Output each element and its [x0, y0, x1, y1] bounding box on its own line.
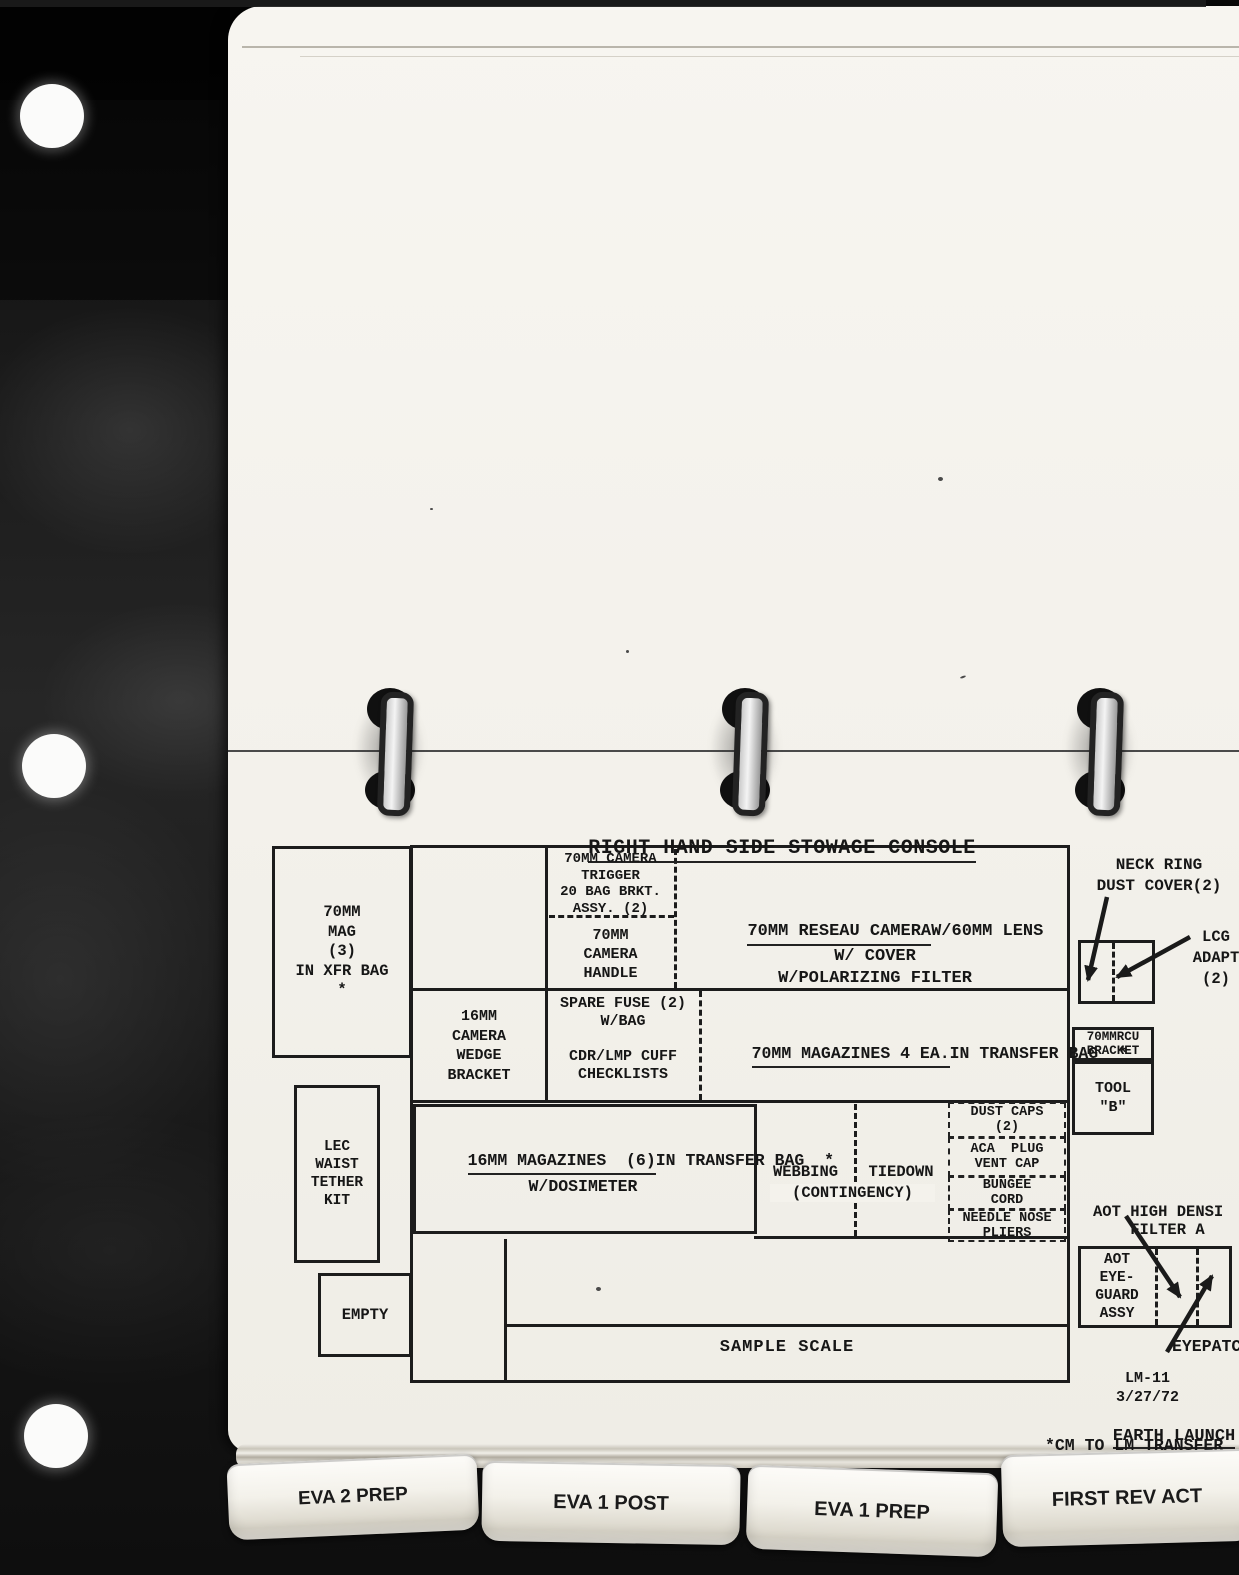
- box-neck-ring-dust-cover: [1078, 940, 1155, 1004]
- cell-16mm-wedge-bracket: 16MM CAMERA WEDGE BRACKET: [414, 1007, 544, 1085]
- cell-sample-scale: SAMPLE SCALE: [507, 1338, 1067, 1357]
- label-eyepatch: EYEPATC: [1172, 1337, 1239, 1356]
- tab-eva-1-post: EVA 1 POST: [481, 1461, 740, 1545]
- page-edge-line: [242, 46, 1239, 48]
- scan-speck: [430, 508, 433, 510]
- ring-loop: [377, 691, 414, 816]
- mags16-title: 16MM MAGAZINES (6): [468, 1149, 656, 1175]
- box-tool-b: TOOL "B": [1072, 1061, 1154, 1135]
- binder-ring-left: [355, 688, 425, 810]
- label-neck-ring-dust-cover: NECK RING DUST COVER(2): [1075, 855, 1239, 897]
- scanner-edge-strip: [0, 0, 1206, 7]
- label-lm-id-date: LM-11 3/27/72: [1095, 1369, 1200, 1407]
- cell-contingency: (CONTINGENCY): [770, 1184, 935, 1202]
- box-divider-dashed: [1155, 1249, 1158, 1325]
- cell-70mm-camera-trigger: 70MM CAMERA TRIGGER 20 BAG BRKT. ASSY. (…: [547, 851, 674, 917]
- box-divider-dashed: [1196, 1249, 1199, 1325]
- box-70mm-mag: 70MM MAG (3) IN XFR BAG *: [272, 846, 412, 1058]
- cell-dust-caps: DUST CAPS (2): [948, 1102, 1066, 1138]
- binder-ring-center: [710, 688, 780, 810]
- punch-hole-top: [20, 84, 84, 148]
- ring-loop: [1087, 691, 1124, 816]
- cell-70mm-magazines: 70MM MAGAZINES 4 EA.IN TRANSFER BAG *: [712, 1021, 1067, 1090]
- scan-speck: [938, 477, 943, 481]
- cell-70mm-reseau-camera: 70MM RESEAU CAMERAW/60MM LENS W/ COVER W…: [685, 899, 1065, 1012]
- box-divider-dashed: [1112, 943, 1115, 1001]
- cell-bungee-cord: BUNGEE CORD: [948, 1176, 1066, 1210]
- tab-label: FIRST REV ACT: [1052, 1485, 1203, 1512]
- binder-ring-right: [1065, 688, 1135, 810]
- scan-speck: [596, 1287, 601, 1291]
- tab-label: EVA 1 PREP: [814, 1497, 930, 1524]
- punch-hole-middle: [22, 734, 86, 798]
- mags70-detail: IN TRANSFER BAG *: [950, 1044, 1128, 1063]
- cell-70mm-camera-handle: 70MM CAMERA HANDLE: [547, 926, 674, 983]
- mags70-title: 70MM MAGAZINES 4 EA.: [752, 1043, 950, 1068]
- cell-needle-nose-pliers: NEEDLE NOSE PLIERS: [948, 1209, 1066, 1242]
- page-edge-line-2: [300, 56, 1239, 57]
- scanned-binder-page: RIGHT HAND SIDE STOWAGE CONSOLE 70MM CAM…: [0, 0, 1239, 1575]
- grid-line: [507, 1324, 1067, 1327]
- box-lec-waist-tether: LEC WAIST TETHER KIT: [294, 1085, 380, 1263]
- cell-aca-plug-vent-cap: ACA PLUG VENT CAP: [948, 1137, 1066, 1177]
- tab-eva-1-prep: EVA 1 PREP: [746, 1465, 999, 1558]
- cell-webbing: WEBBING: [757, 1163, 854, 1181]
- label-aot-high-density-filter: AOT HIGH DENSI FILTER A: [1093, 1203, 1223, 1239]
- ring-loop: [732, 691, 769, 816]
- box-empty: EMPTY: [318, 1273, 412, 1357]
- tab-eva-2-prep: EVA 2 PREP: [226, 1454, 479, 1541]
- tab-label: EVA 1 POST: [553, 1490, 669, 1515]
- scanner-shadow-left: [0, 0, 230, 300]
- punch-hole-bottom: [24, 1404, 88, 1468]
- grid-line: [504, 1239, 507, 1381]
- label-aot-eyeguard-assy: AOT EYE- GUARD ASSY: [1080, 1251, 1154, 1323]
- tab-first-rev-act: FIRST REV ACT: [1001, 1449, 1239, 1548]
- reseau-title: 70MM RESEAU CAMERA: [747, 921, 931, 946]
- cell-cuff-checklists: CDR/LMP CUFF CHECKLISTS: [547, 1048, 699, 1084]
- cell-tiedown: TIEDOWN: [857, 1163, 945, 1181]
- cell-spare-fuse: SPARE FUSE (2) W/BAG: [547, 995, 699, 1031]
- scan-speck: [626, 650, 629, 653]
- tab-label: EVA 2 PREP: [298, 1484, 409, 1511]
- cell-16mm-magazines: 16MM MAGAZINES (6)IN TRANSFER BAG * W/DO…: [428, 1126, 738, 1221]
- label-lcg-adapter: LCG ADAPT (2): [1180, 927, 1239, 990]
